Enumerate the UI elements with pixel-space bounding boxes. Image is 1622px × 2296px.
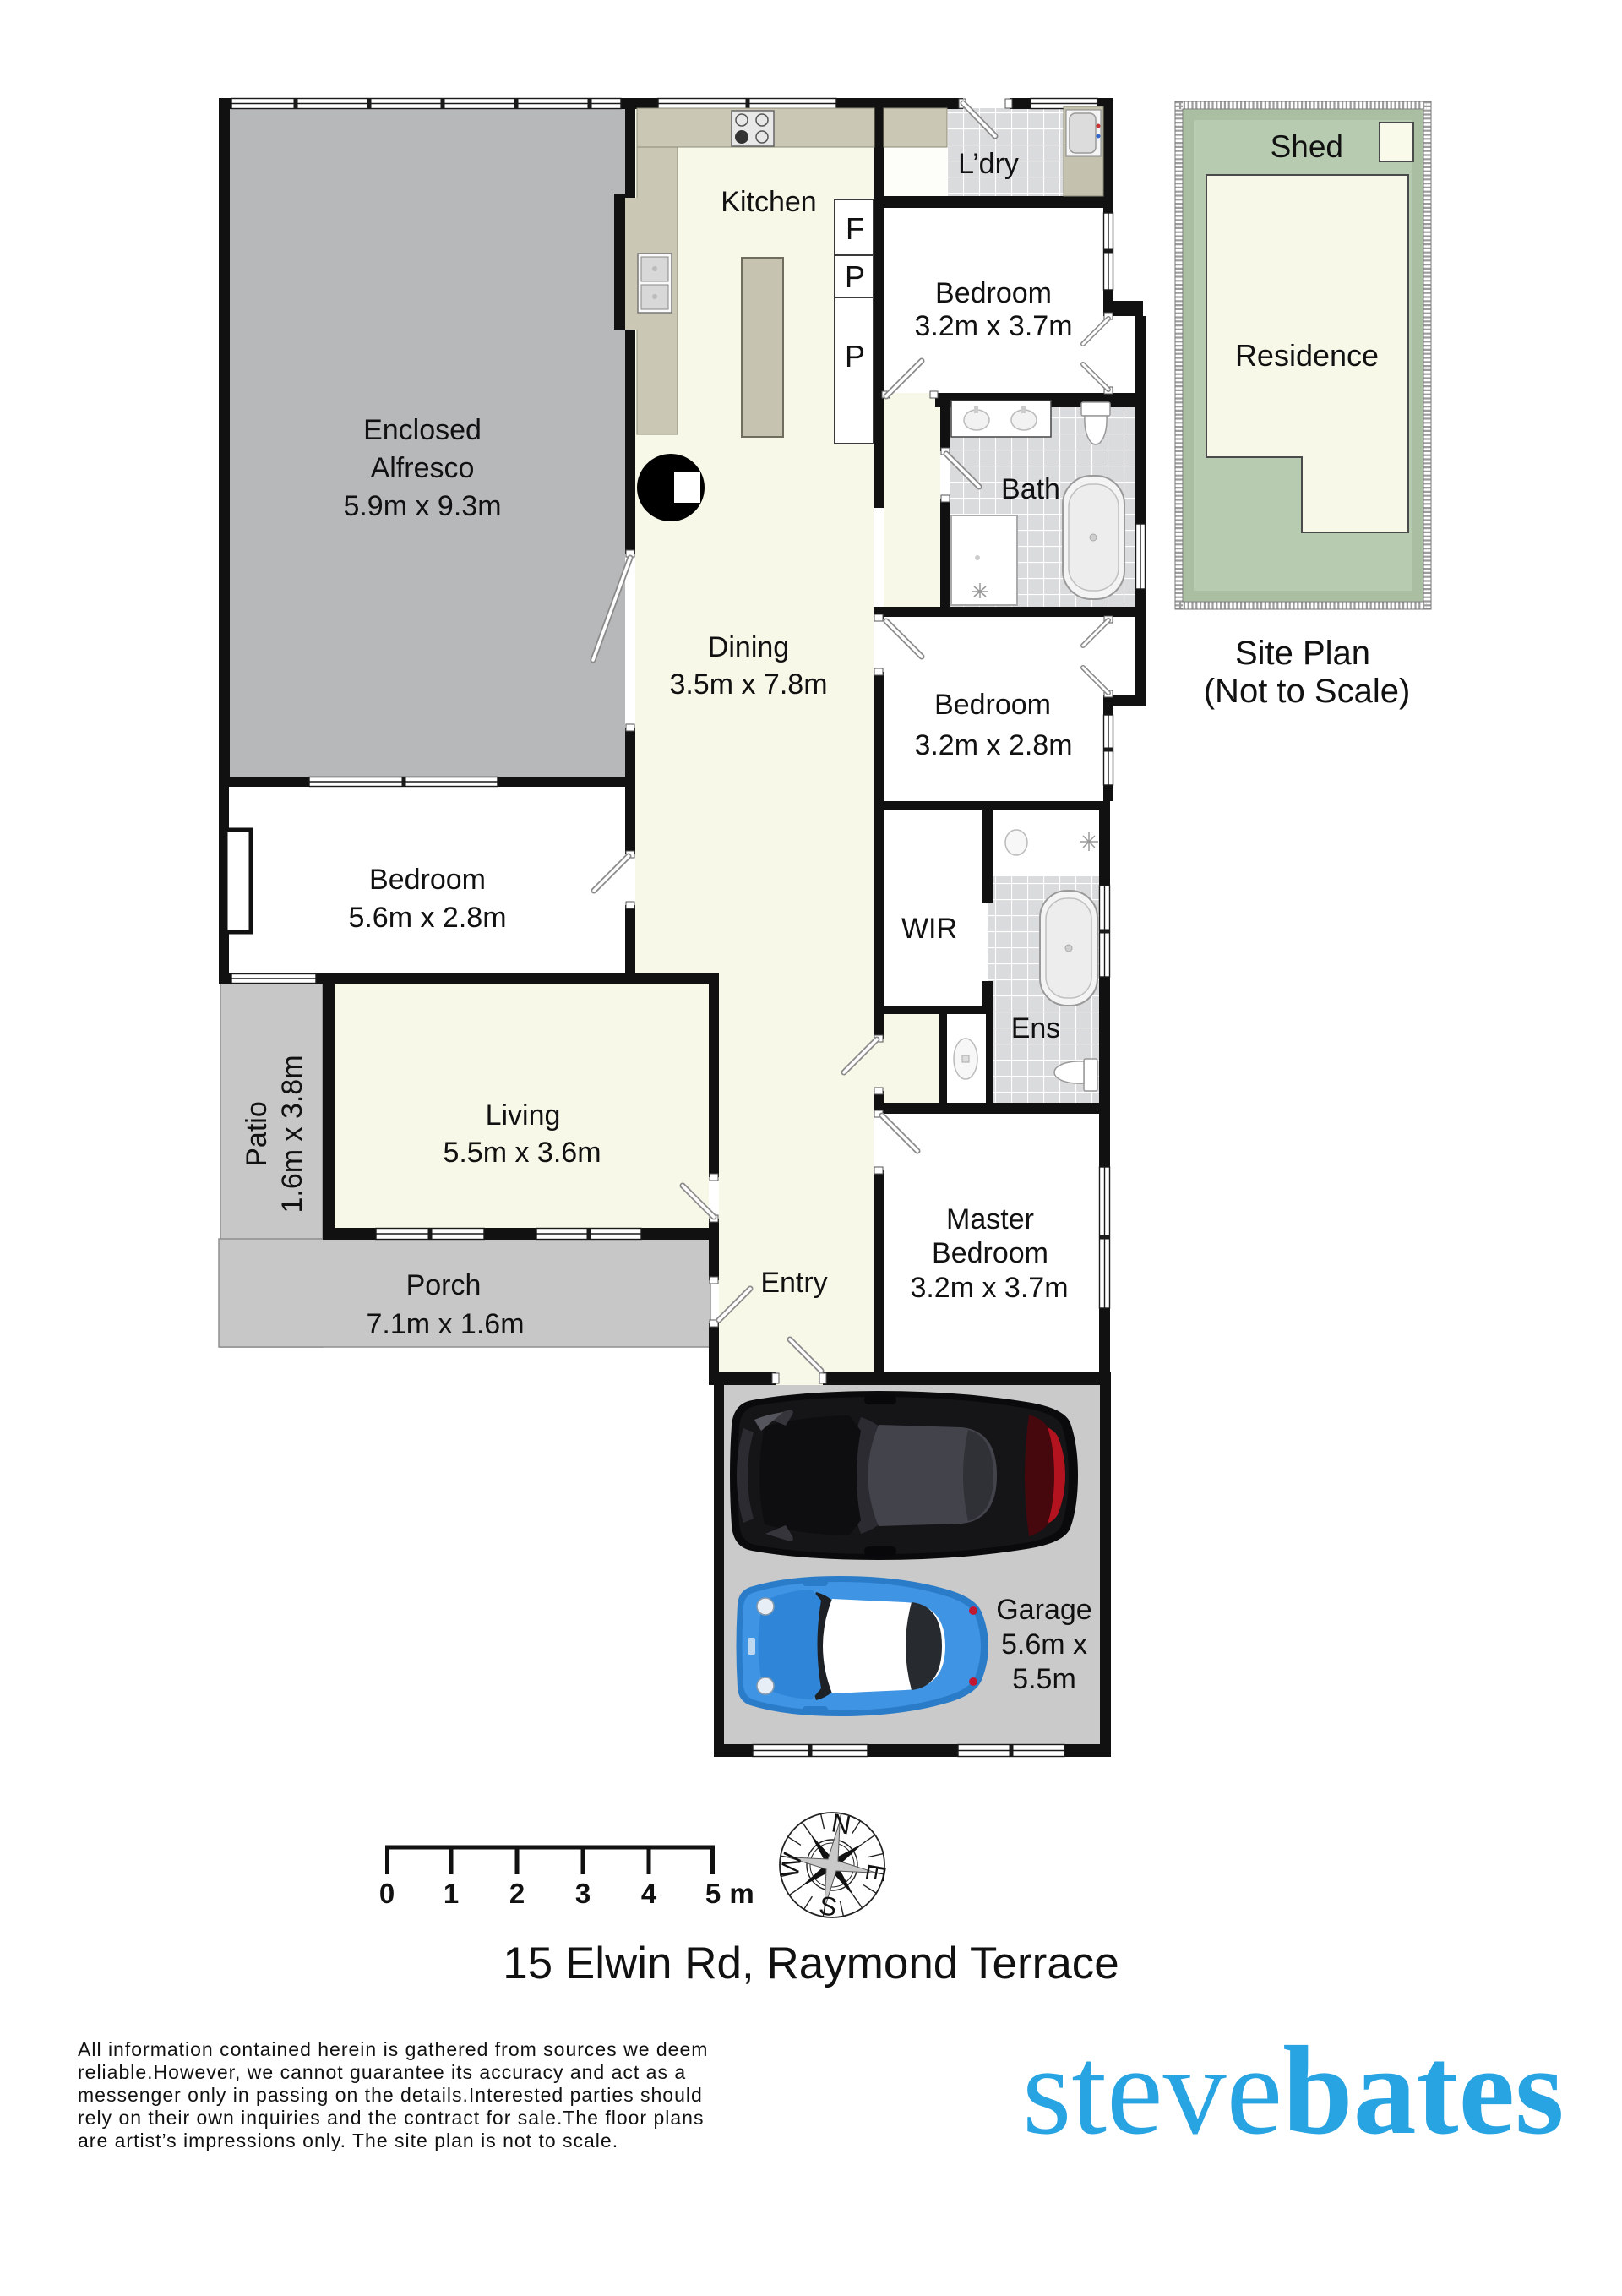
svg-text:Enclosed: Enclosed xyxy=(363,414,482,446)
svg-text:Bedroom: Bedroom xyxy=(934,689,1051,721)
svg-text:Residence: Residence xyxy=(1235,338,1379,373)
svg-text:5.9m x 9.3m: 5.9m x 9.3m xyxy=(343,490,501,522)
svg-text:Master: Master xyxy=(946,1203,1034,1235)
svg-text:1: 1 xyxy=(444,1878,459,1909)
svg-text:(Not to Scale): (Not to Scale) xyxy=(1204,673,1411,710)
svg-text:Shed: Shed xyxy=(1271,129,1343,164)
svg-text:5.5m: 5.5m xyxy=(1012,1663,1076,1695)
svg-text:Living: Living xyxy=(486,1099,561,1132)
svg-text:Bedroom: Bedroom xyxy=(932,1237,1048,1269)
svg-text:2: 2 xyxy=(509,1878,525,1909)
svg-text:Bath: Bath xyxy=(1001,473,1060,505)
svg-text:3.2m x 2.8m: 3.2m x 2.8m xyxy=(914,729,1072,761)
svg-text:3: 3 xyxy=(575,1878,591,1909)
svg-text:P: P xyxy=(845,259,865,294)
svg-text:5.5m x 3.6m: 5.5m x 3.6m xyxy=(443,1137,601,1169)
svg-text:5: 5 xyxy=(705,1878,721,1909)
svg-text:3.2m x 3.7m: 3.2m x 3.7m xyxy=(910,1272,1068,1304)
svg-text:Bedroom: Bedroom xyxy=(369,864,486,896)
svg-text:4: 4 xyxy=(641,1878,657,1909)
svg-text:All information contained here: All information contained herein is gath… xyxy=(78,2038,708,2060)
svg-text:3.2m x 3.7m: 3.2m x 3.7m xyxy=(914,310,1072,342)
svg-text:Porch: Porch xyxy=(406,1269,482,1301)
svg-text:5.6m x: 5.6m x xyxy=(1001,1628,1087,1661)
svg-text:m: m xyxy=(729,1878,754,1909)
svg-text:stevebates: stevebates xyxy=(1022,2021,1565,2161)
svg-text:Kitchen: Kitchen xyxy=(721,186,816,218)
svg-text:Ens: Ens xyxy=(1011,1012,1061,1044)
svg-text:P: P xyxy=(845,339,865,374)
svg-text:Alfresco: Alfresco xyxy=(371,452,475,484)
svg-text:rely on their own inquiries an: rely on their own inquiries and the cont… xyxy=(78,2107,704,2129)
svg-text:reliable.However, we cannot gu: reliable.However, we cannot guarantee it… xyxy=(78,2061,686,2083)
svg-text:Garage: Garage xyxy=(996,1594,1091,1626)
svg-text:messenger only in passing on t: messenger only in passing on the details… xyxy=(78,2084,703,2106)
svg-text:15 Elwin Rd, Raymond Terrace: 15 Elwin Rd, Raymond Terrace xyxy=(503,1939,1119,1988)
svg-text:F: F xyxy=(846,211,864,246)
svg-text:7.1m x 1.6m: 7.1m x 1.6m xyxy=(366,1308,524,1340)
svg-text:L’dry: L’dry xyxy=(958,148,1019,180)
svg-text:Dining: Dining xyxy=(708,631,789,663)
svg-text:WIR: WIR xyxy=(901,913,957,945)
svg-text:0: 0 xyxy=(379,1878,395,1909)
svg-text:are artist’s impressions only.: are artist’s impressions only. The site … xyxy=(78,2130,618,2151)
svg-text:1.6m x 3.8m: 1.6m x 3.8m xyxy=(276,1055,308,1213)
svg-text:Patio: Patio xyxy=(241,1101,273,1167)
svg-text:5.6m x 2.8m: 5.6m x 2.8m xyxy=(348,902,506,934)
svg-text:Site Plan: Site Plan xyxy=(1235,635,1370,672)
svg-text:Entry: Entry xyxy=(760,1267,827,1299)
svg-text:Bedroom: Bedroom xyxy=(935,277,1052,309)
svg-text:3.5m x 7.8m: 3.5m x 7.8m xyxy=(669,668,827,701)
